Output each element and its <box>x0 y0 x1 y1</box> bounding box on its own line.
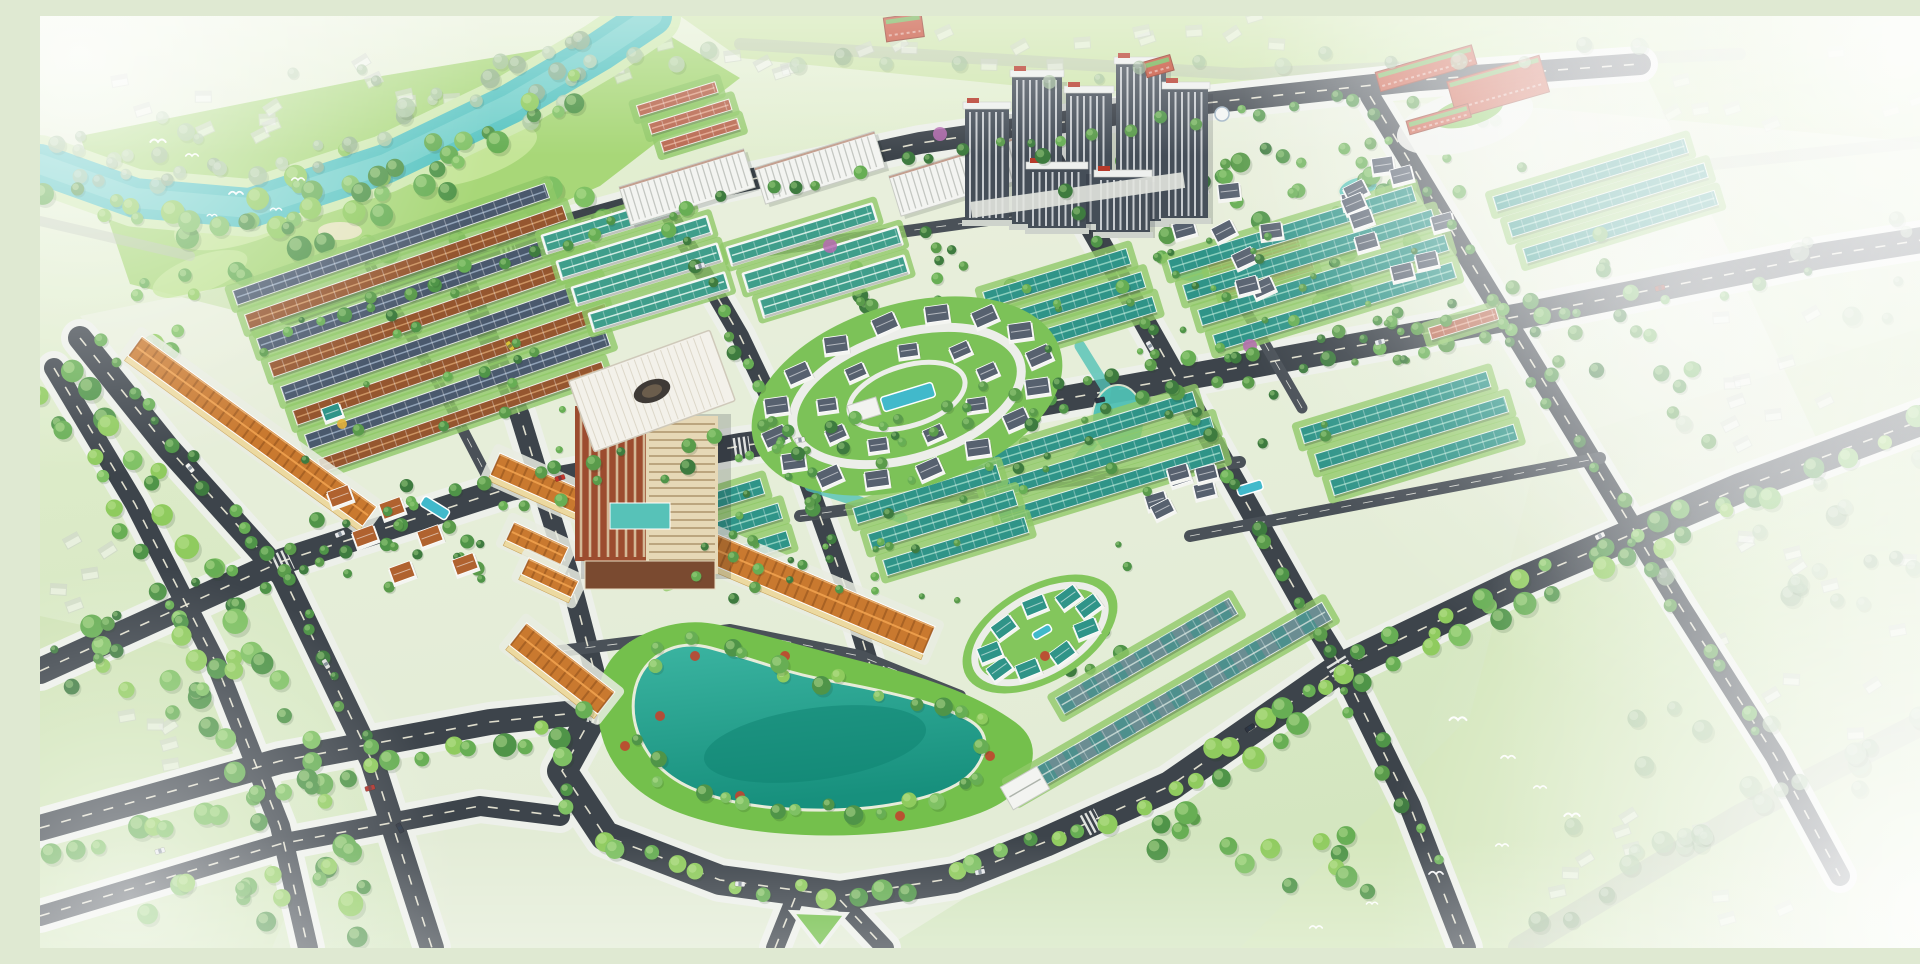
scene-canvas <box>40 16 1920 948</box>
haze-bottom-edge <box>40 836 1920 948</box>
layer-haze <box>40 16 1920 948</box>
aerial-master-plan-render <box>40 16 1920 948</box>
haze-right-edge <box>1490 16 1920 948</box>
